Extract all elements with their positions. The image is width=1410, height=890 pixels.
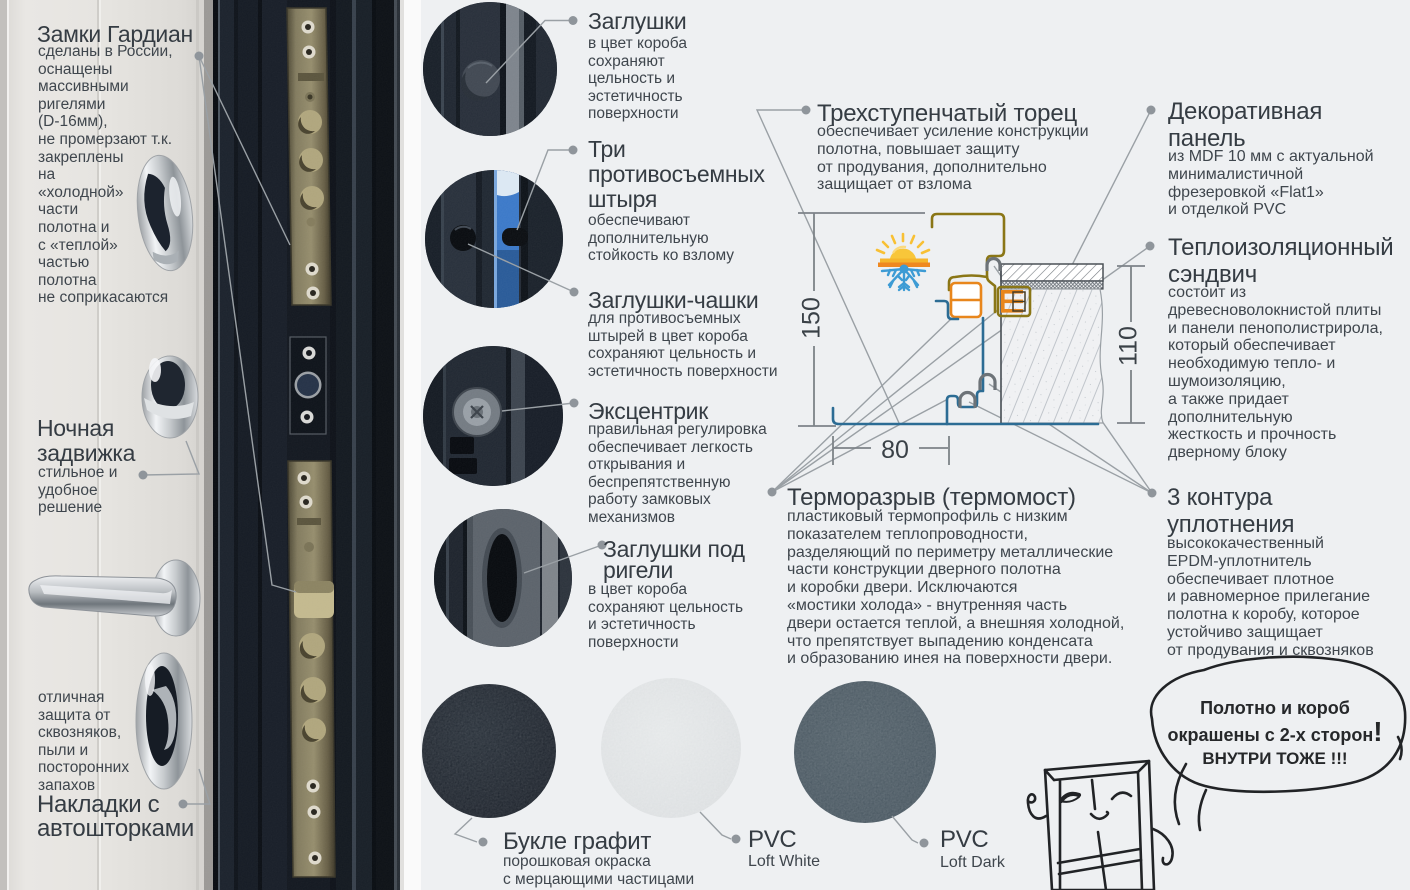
svg-text:110: 110 [1115,326,1143,366]
svg-text:80: 80 [881,436,909,464]
svg-text:150: 150 [798,297,826,339]
